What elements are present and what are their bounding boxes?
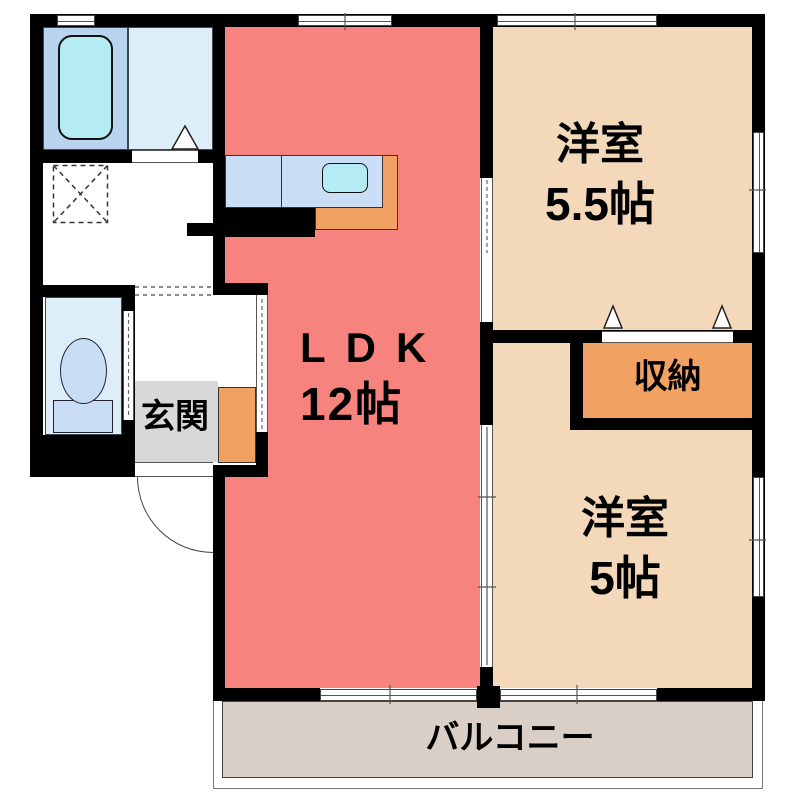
wall	[213, 27, 225, 295]
wall	[480, 667, 493, 701]
wall	[30, 14, 43, 477]
toilet-tank-icon	[53, 400, 113, 433]
wall	[570, 343, 583, 430]
entrance-door	[135, 462, 213, 477]
room-label-balcony: バルコニー	[380, 719, 640, 757]
room-name: LDK	[300, 324, 475, 371]
room-name: バルコニー	[425, 719, 594, 757]
wall	[752, 14, 765, 701]
hallway-partition-track	[135, 287, 213, 295]
window-icon	[753, 477, 764, 597]
room-name: 収納	[634, 358, 702, 396]
kitchen-counter-divider	[281, 155, 282, 208]
wall	[187, 223, 213, 236]
closet-door-opening	[602, 331, 733, 343]
wall	[657, 688, 765, 701]
shoe-cabinet	[218, 387, 256, 463]
bedroom2-partition-door	[481, 425, 493, 667]
wall	[480, 27, 493, 178]
washroom-door-opening	[132, 150, 198, 163]
window-icon	[753, 132, 764, 253]
wall	[256, 432, 268, 468]
door-swing-arc-icon	[137, 477, 213, 553]
room-label-entrance: 玄関	[135, 398, 215, 436]
room-size: 12帖	[300, 379, 475, 431]
washing-machine-area-icon	[54, 166, 108, 223]
window-icon	[298, 15, 392, 26]
toilet-door	[123, 311, 134, 420]
room-size: 5帖	[525, 553, 725, 605]
wall	[213, 688, 320, 701]
wall	[213, 477, 225, 701]
hallway-ldk-door	[256, 295, 268, 432]
wall	[213, 465, 268, 477]
washroom-area	[128, 27, 213, 150]
bedroom1-sliding-door	[481, 178, 493, 322]
window-icon	[500, 689, 657, 701]
room-label-storage: 収納	[583, 358, 752, 396]
room-name: 玄関	[141, 398, 209, 436]
wall	[30, 435, 135, 477]
window-icon	[497, 15, 657, 26]
window-icon	[320, 689, 477, 701]
room-size: 5.5帖	[500, 179, 700, 231]
floor-plan: 洋室 5.5帖 LDK 12帖 収納 洋室 5帖 玄関 バルコニー	[0, 0, 800, 800]
wall	[225, 208, 315, 237]
room-name: 洋室	[525, 494, 725, 543]
wall	[213, 283, 268, 295]
window-icon	[57, 15, 95, 26]
toilet-icon	[60, 338, 107, 404]
room-label-western-55: 洋室 5.5帖	[500, 120, 700, 231]
room-label-ldk: LDK 12帖	[300, 324, 475, 431]
wall	[30, 285, 135, 297]
kitchen-sink-icon	[322, 163, 368, 193]
room-name: 洋室	[500, 120, 700, 169]
room-label-western-5: 洋室 5帖	[525, 494, 725, 605]
bathtub-icon	[58, 35, 113, 140]
wall	[570, 418, 765, 430]
